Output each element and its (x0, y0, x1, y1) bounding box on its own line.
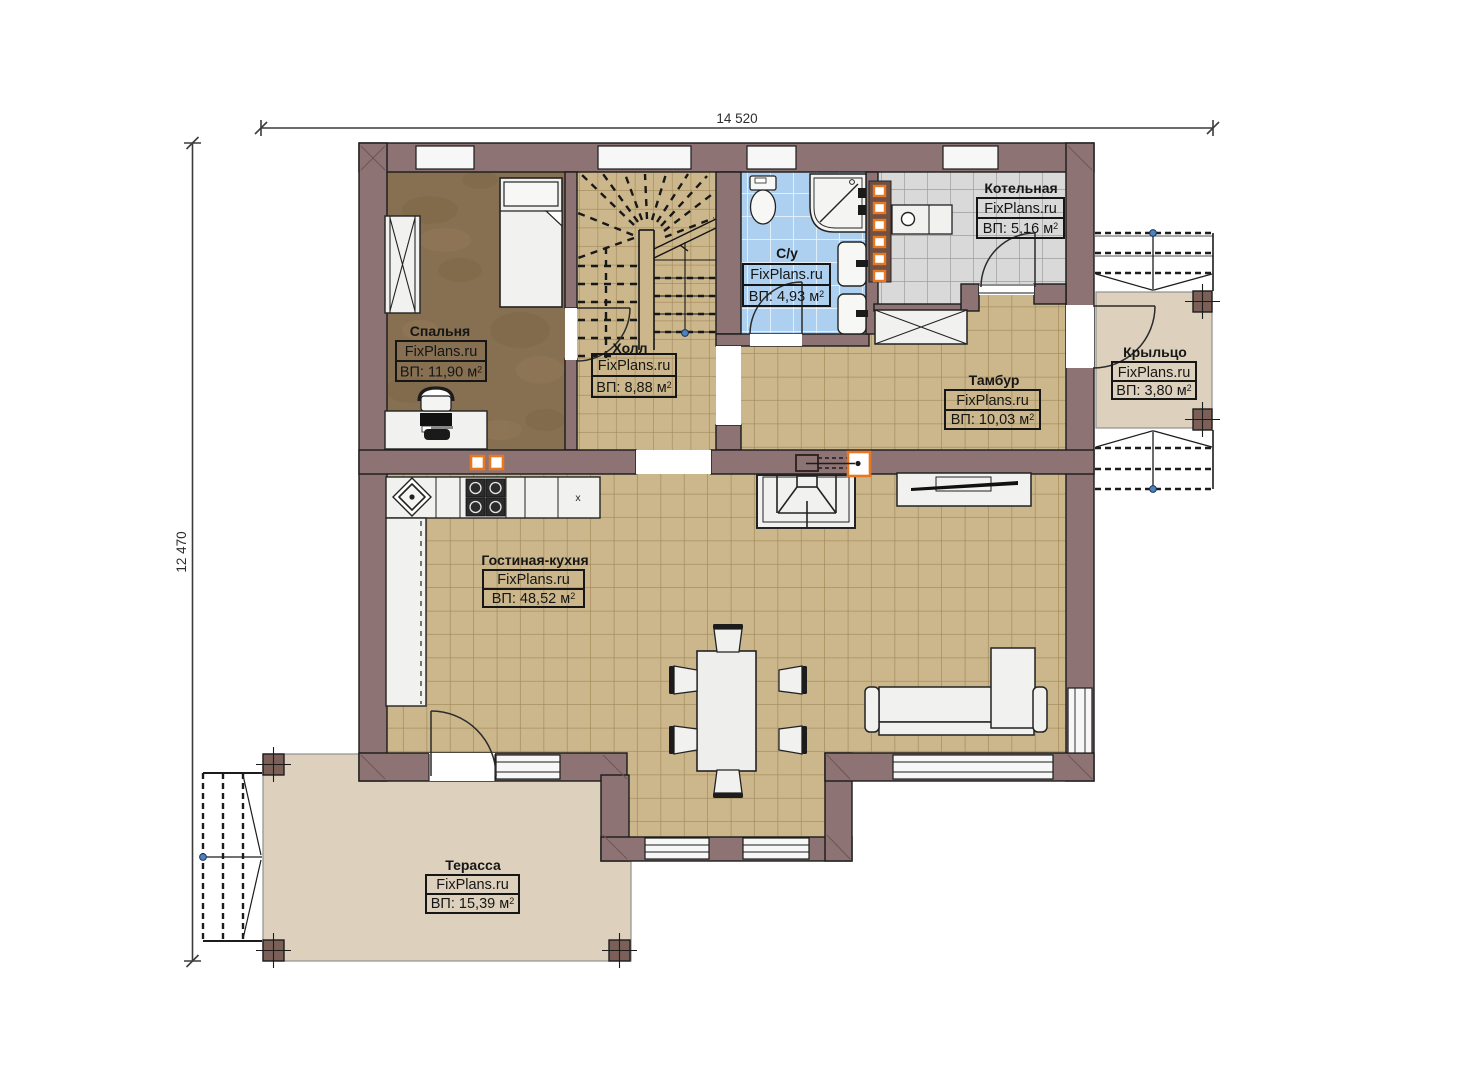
svg-text:x: x (575, 492, 581, 504)
svg-text:ВП: 15,39 м2: ВП: 15,39 м2 (431, 896, 514, 912)
svg-text:FixPlans.ru: FixPlans.ru (405, 344, 478, 360)
svg-text:FixPlans.ru: FixPlans.ru (436, 877, 509, 893)
svg-text:ВП: 48,52 м2: ВП: 48,52 м2 (492, 591, 575, 607)
svg-text:12 470: 12 470 (174, 531, 189, 572)
svg-text:Котельная: Котельная (984, 180, 1057, 196)
svg-text:FixPlans.ru: FixPlans.ru (598, 358, 671, 374)
svg-text:14 520: 14 520 (716, 111, 757, 126)
svg-text:ВП: 5,16 м2: ВП: 5,16 м2 (983, 221, 1058, 237)
svg-text:ВП: 3,80 м2: ВП: 3,80 м2 (1116, 383, 1191, 399)
svg-text:ВП: 10,03 м2: ВП: 10,03 м2 (951, 412, 1034, 428)
svg-text:FixPlans.ru: FixPlans.ru (750, 267, 823, 283)
svg-text:FixPlans.ru: FixPlans.ru (1118, 365, 1191, 381)
svg-text:Тамбур: Тамбур (969, 372, 1020, 388)
svg-text:FixPlans.ru: FixPlans.ru (984, 201, 1057, 217)
svg-text:FixPlans.ru: FixPlans.ru (956, 393, 1029, 409)
svg-text:С/у: С/у (776, 245, 798, 261)
svg-text:Терасса: Терасса (445, 857, 501, 873)
svg-text:Крыльцо: Крыльцо (1123, 344, 1187, 360)
svg-text:Гостиная-кухня: Гостиная-кухня (481, 552, 588, 568)
svg-text:FixPlans.ru: FixPlans.ru (497, 572, 570, 588)
svg-text:ВП: 8,88 м2: ВП: 8,88 м2 (596, 380, 671, 396)
svg-text:ВП: 11,90 м2: ВП: 11,90 м2 (400, 365, 482, 381)
svg-text:ВП: 4,93 м2: ВП: 4,93 м2 (749, 289, 824, 305)
svg-text:Спальня: Спальня (410, 323, 470, 339)
